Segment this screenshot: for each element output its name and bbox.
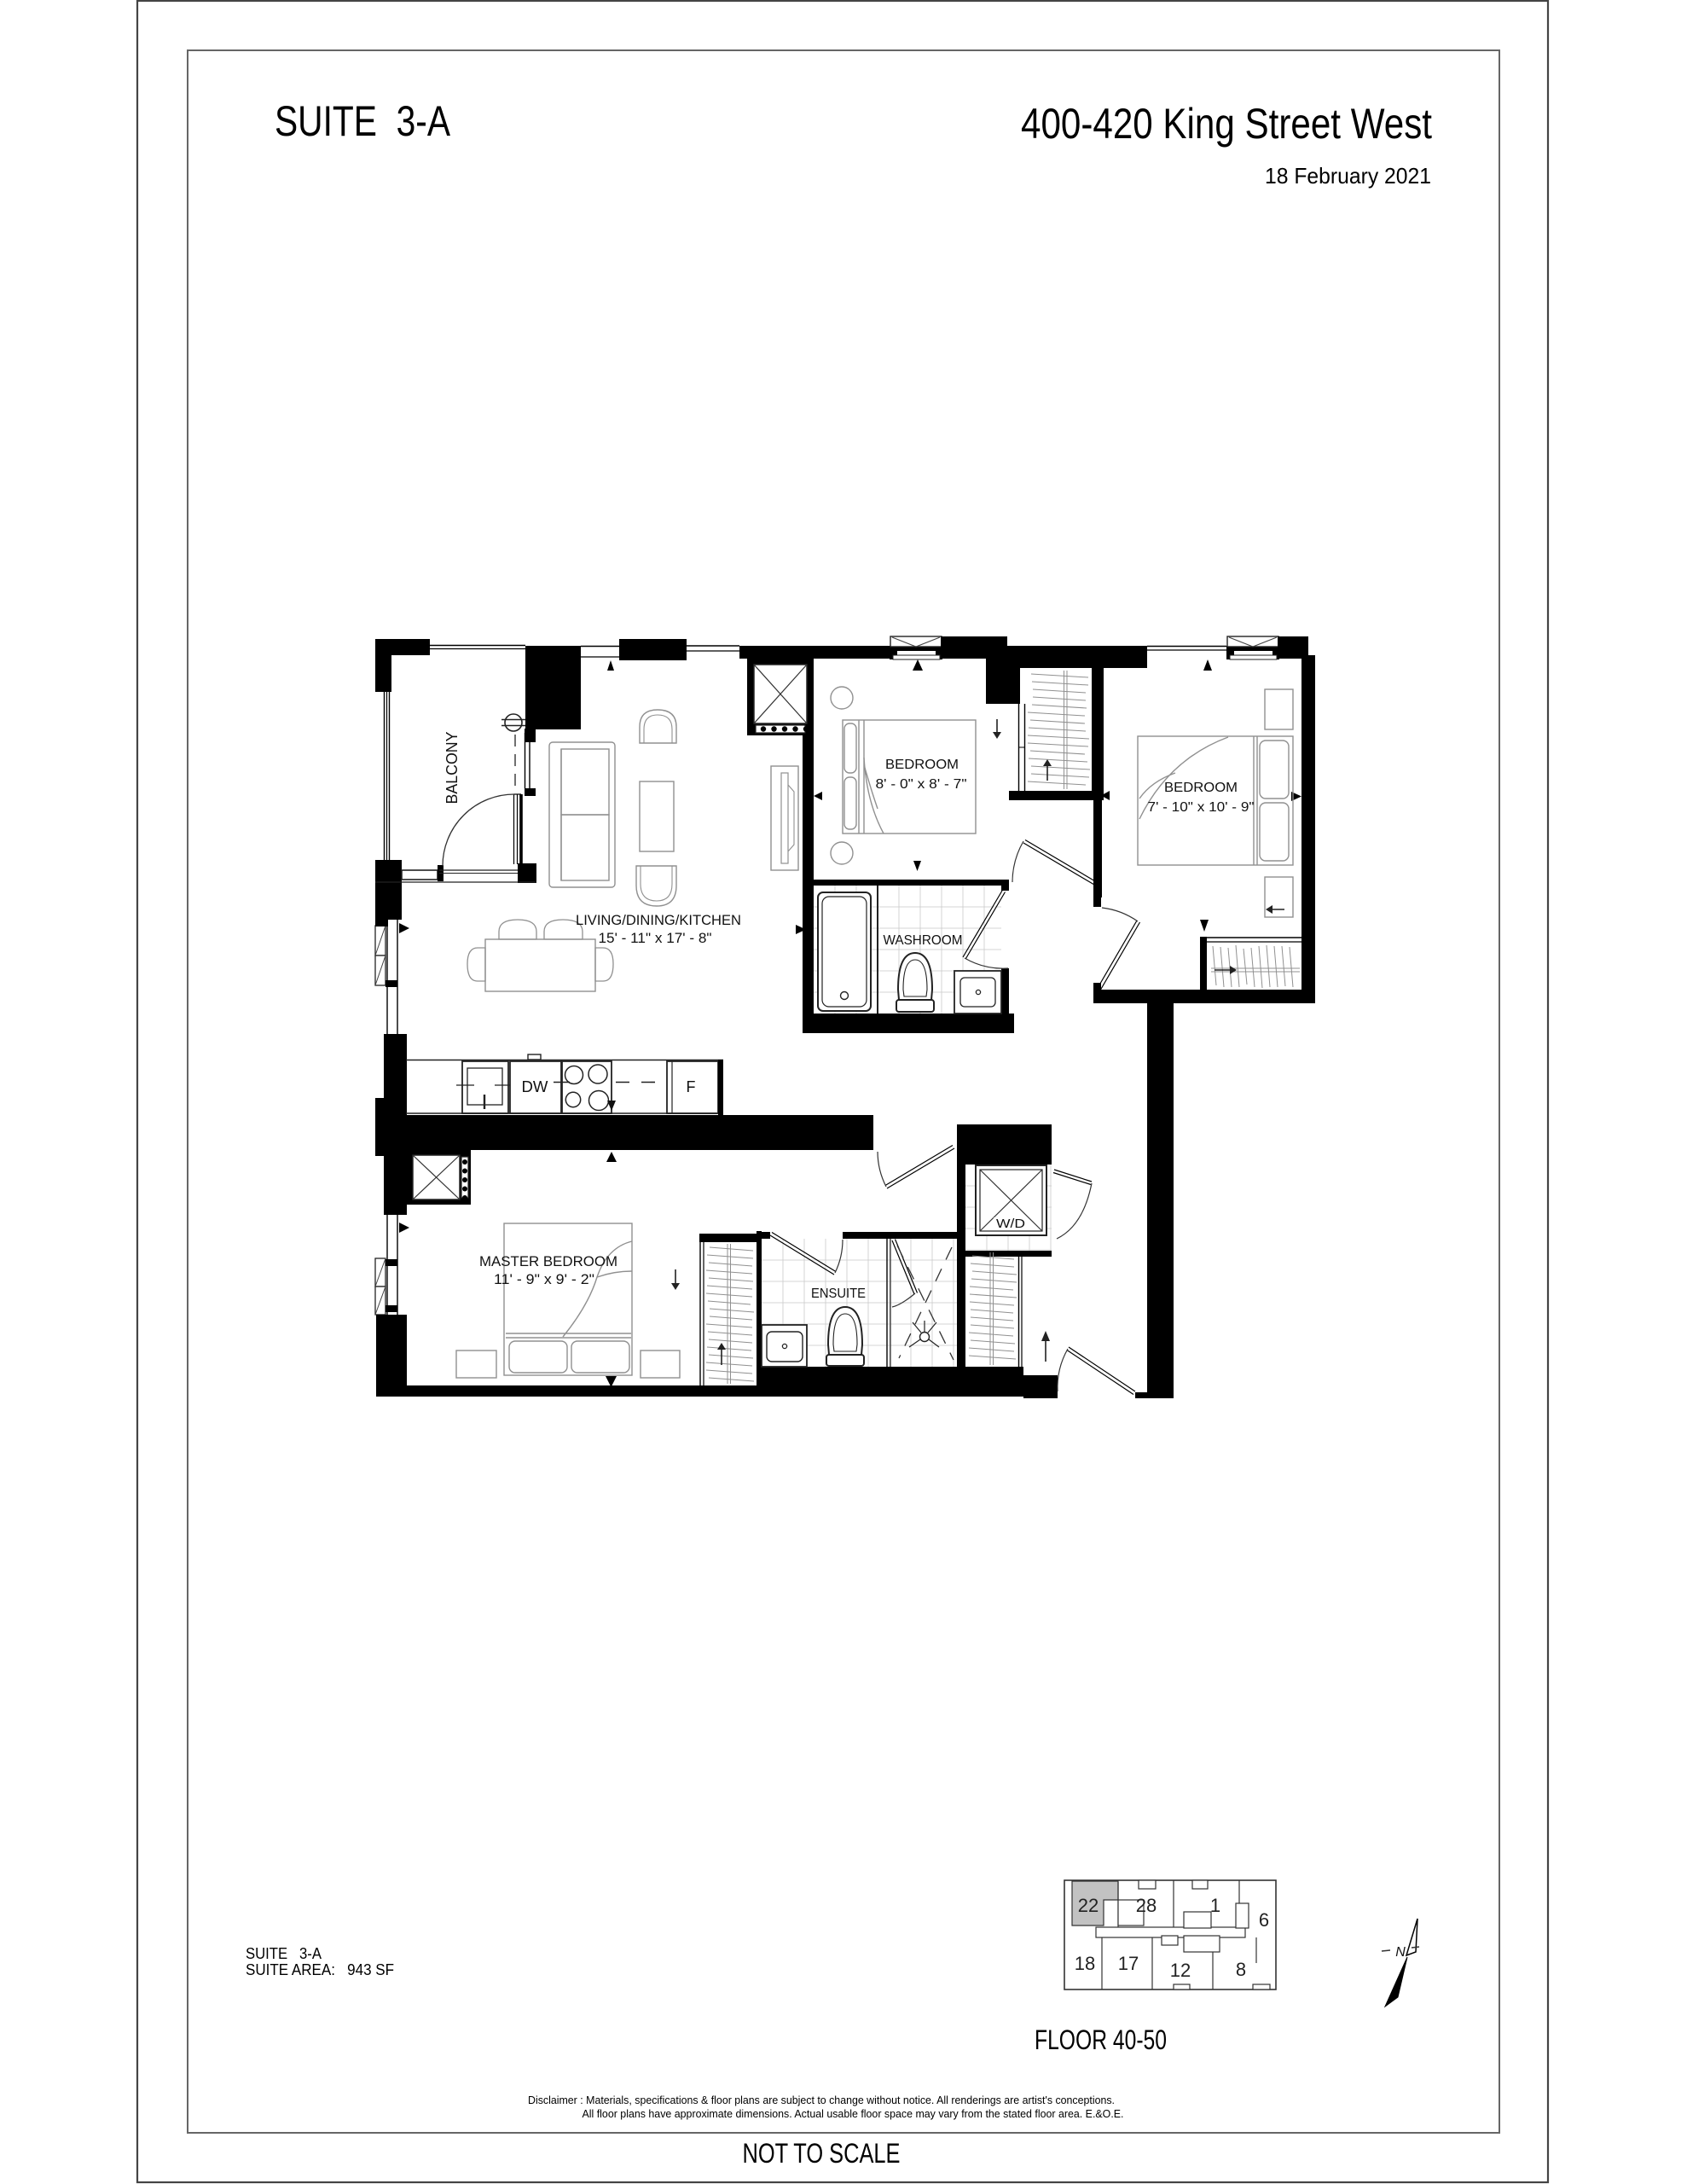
svg-text:WASHROOM: WASHROOM (884, 933, 963, 948)
svg-text:7' - 10" x 10' - 9": 7' - 10" x 10' - 9" (1148, 800, 1255, 815)
svg-text:BEDROOM: BEDROOM (1164, 781, 1238, 795)
svg-text:SUITE 3-A: SUITE 3-A (275, 97, 451, 145)
svg-text:8' - 0" x 8' - 7": 8' - 0" x 8' - 7" (876, 777, 967, 792)
svg-text:6: 6 (1259, 1909, 1269, 1931)
svg-text:17: 17 (1118, 1953, 1139, 1974)
svg-text:11' - 9" x 9' - 2": 11' - 9" x 9' - 2" (494, 1271, 594, 1287)
svg-text:22: 22 (1078, 1895, 1099, 1916)
svg-text:LIVING/DINING/KITCHEN: LIVING/DINING/KITCHEN (576, 912, 741, 928)
svg-text:F: F (687, 1078, 696, 1095)
svg-text:All floor plans have approxima: All floor plans have approximate dimensi… (583, 2108, 1124, 2120)
svg-text:BALCONY: BALCONY (443, 732, 461, 804)
svg-text:28: 28 (1136, 1895, 1157, 1916)
svg-text:18: 18 (1075, 1953, 1095, 1974)
svg-text:SUITE 3-A: SUITE 3-A (246, 1944, 322, 1962)
svg-text:12: 12 (1170, 1960, 1191, 1981)
svg-text:DW: DW (522, 1078, 548, 1095)
svg-text:1: 1 (1210, 1895, 1220, 1916)
svg-text:ENSUITE: ENSUITE (811, 1287, 866, 1301)
svg-text:N: N (1395, 1945, 1406, 1960)
svg-text:15' - 11" x 17' - 8": 15' - 11" x 17' - 8" (599, 930, 712, 946)
svg-text:W/D: W/D (996, 1217, 1025, 1231)
svg-text:8: 8 (1236, 1959, 1246, 1980)
svg-text:FLOOR 40-50: FLOOR 40-50 (1035, 2024, 1167, 2055)
svg-text:18 February 2021: 18 February 2021 (1265, 163, 1431, 189)
svg-text:Disclaimer : Materials, specif: Disclaimer : Materials, specifications &… (528, 2094, 1115, 2106)
svg-text:NOT TO SCALE: NOT TO SCALE (743, 2138, 901, 2169)
svg-text:400-420 King Street West: 400-420 King Street West (1021, 100, 1432, 148)
svg-text:BEDROOM: BEDROOM (885, 758, 959, 772)
svg-text:SUITE AREA: 943 SF: SUITE AREA: 943 SF (246, 1960, 394, 1978)
svg-text:MASTER BEDROOM: MASTER BEDROOM (479, 1253, 617, 1269)
